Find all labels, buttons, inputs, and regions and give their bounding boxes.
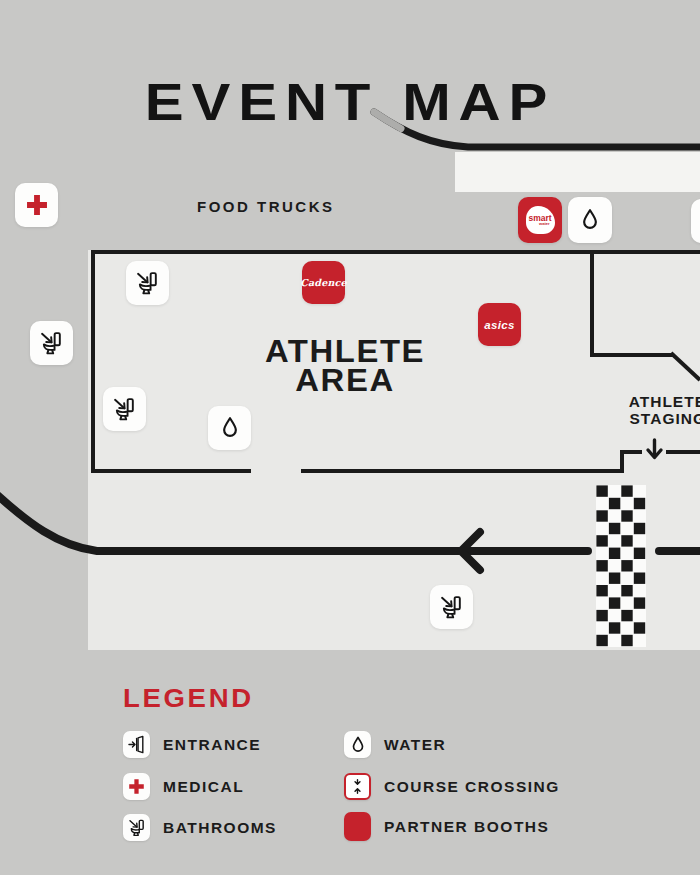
- athlete-area-label: ATHLETE AREA: [202, 337, 488, 395]
- legend-label: WATER: [384, 736, 446, 754]
- water-drop-glyph: [577, 207, 603, 233]
- medical-cross-glyph: [24, 192, 50, 218]
- partial-icon: [691, 199, 700, 243]
- water-icon: [344, 731, 371, 758]
- smartwater-sublabel: water: [539, 222, 549, 226]
- toilet-glyph: [127, 818, 147, 838]
- toilet-glyph: [111, 396, 138, 423]
- partner-booth-icon: [344, 812, 371, 841]
- medical-icon: [123, 773, 150, 800]
- smartwater-logo: smart water: [526, 206, 555, 234]
- food-trucks-label: FOOD TRUCKS: [197, 198, 335, 215]
- medical-cross-glyph: [127, 777, 146, 796]
- athlete-staging-label: ATHLETE STAGING: [560, 394, 700, 427]
- smartwater-booth: smart water: [518, 197, 562, 243]
- cadence-label: Cadence: [300, 277, 347, 288]
- athlete-staging-line2: STAGING: [560, 411, 700, 428]
- course-crossing-icon: [344, 773, 371, 800]
- water-drop-glyph: [217, 415, 243, 441]
- water-icon: [208, 406, 251, 450]
- athlete-area-line1: ATHLETE: [202, 337, 488, 366]
- water-icon: [568, 197, 612, 243]
- toilet-glyph: [38, 330, 65, 357]
- legend-label: COURSE CROSSING: [384, 778, 560, 796]
- legend-row-bathrooms: BATHROOMS: [123, 813, 277, 842]
- legend-label: PARTNER BOOTHS: [384, 818, 549, 836]
- staging-entry-arrow: [648, 440, 661, 458]
- legend-label: ENTRANCE: [163, 736, 261, 754]
- bathroom-icon: [430, 585, 473, 629]
- athlete-staging-line1: ATHLETE: [560, 394, 700, 411]
- door-glyph: [126, 734, 147, 755]
- bathroom-icon: [126, 261, 169, 305]
- page-title: EVENT MAP: [0, 74, 700, 130]
- medical-icon: [15, 183, 58, 227]
- legend-title: LEGEND: [123, 683, 254, 714]
- bathroom-icon: [123, 814, 150, 841]
- toilet-glyph: [438, 594, 465, 621]
- legend-row-medical: MEDICAL: [123, 772, 244, 801]
- legend-label: BATHROOMS: [163, 819, 277, 837]
- legend-label: MEDICAL: [163, 778, 244, 796]
- crossing-arrows-glyph: [348, 777, 367, 796]
- asics-label: asics: [484, 319, 514, 331]
- event-map-page: smart water Cadence asics EVENT MAP FOOD…: [0, 0, 700, 875]
- athlete-area-line2: AREA: [202, 366, 488, 395]
- legend-row-water: WATER: [344, 730, 446, 759]
- bathroom-icon: [103, 387, 146, 431]
- cadence-booth: Cadence: [302, 261, 345, 304]
- legend-row-partner-booths: PARTNER BOOTHS: [344, 812, 549, 841]
- legend-row-course-crossing: COURSE CROSSING: [344, 772, 560, 801]
- course-path-bottom: [0, 492, 700, 570]
- entrance-icon: [123, 731, 150, 758]
- toilet-glyph: [134, 270, 161, 297]
- water-drop-glyph: [348, 735, 368, 755]
- bathroom-icon: [30, 321, 73, 365]
- legend-row-entrance: ENTRANCE: [123, 730, 261, 759]
